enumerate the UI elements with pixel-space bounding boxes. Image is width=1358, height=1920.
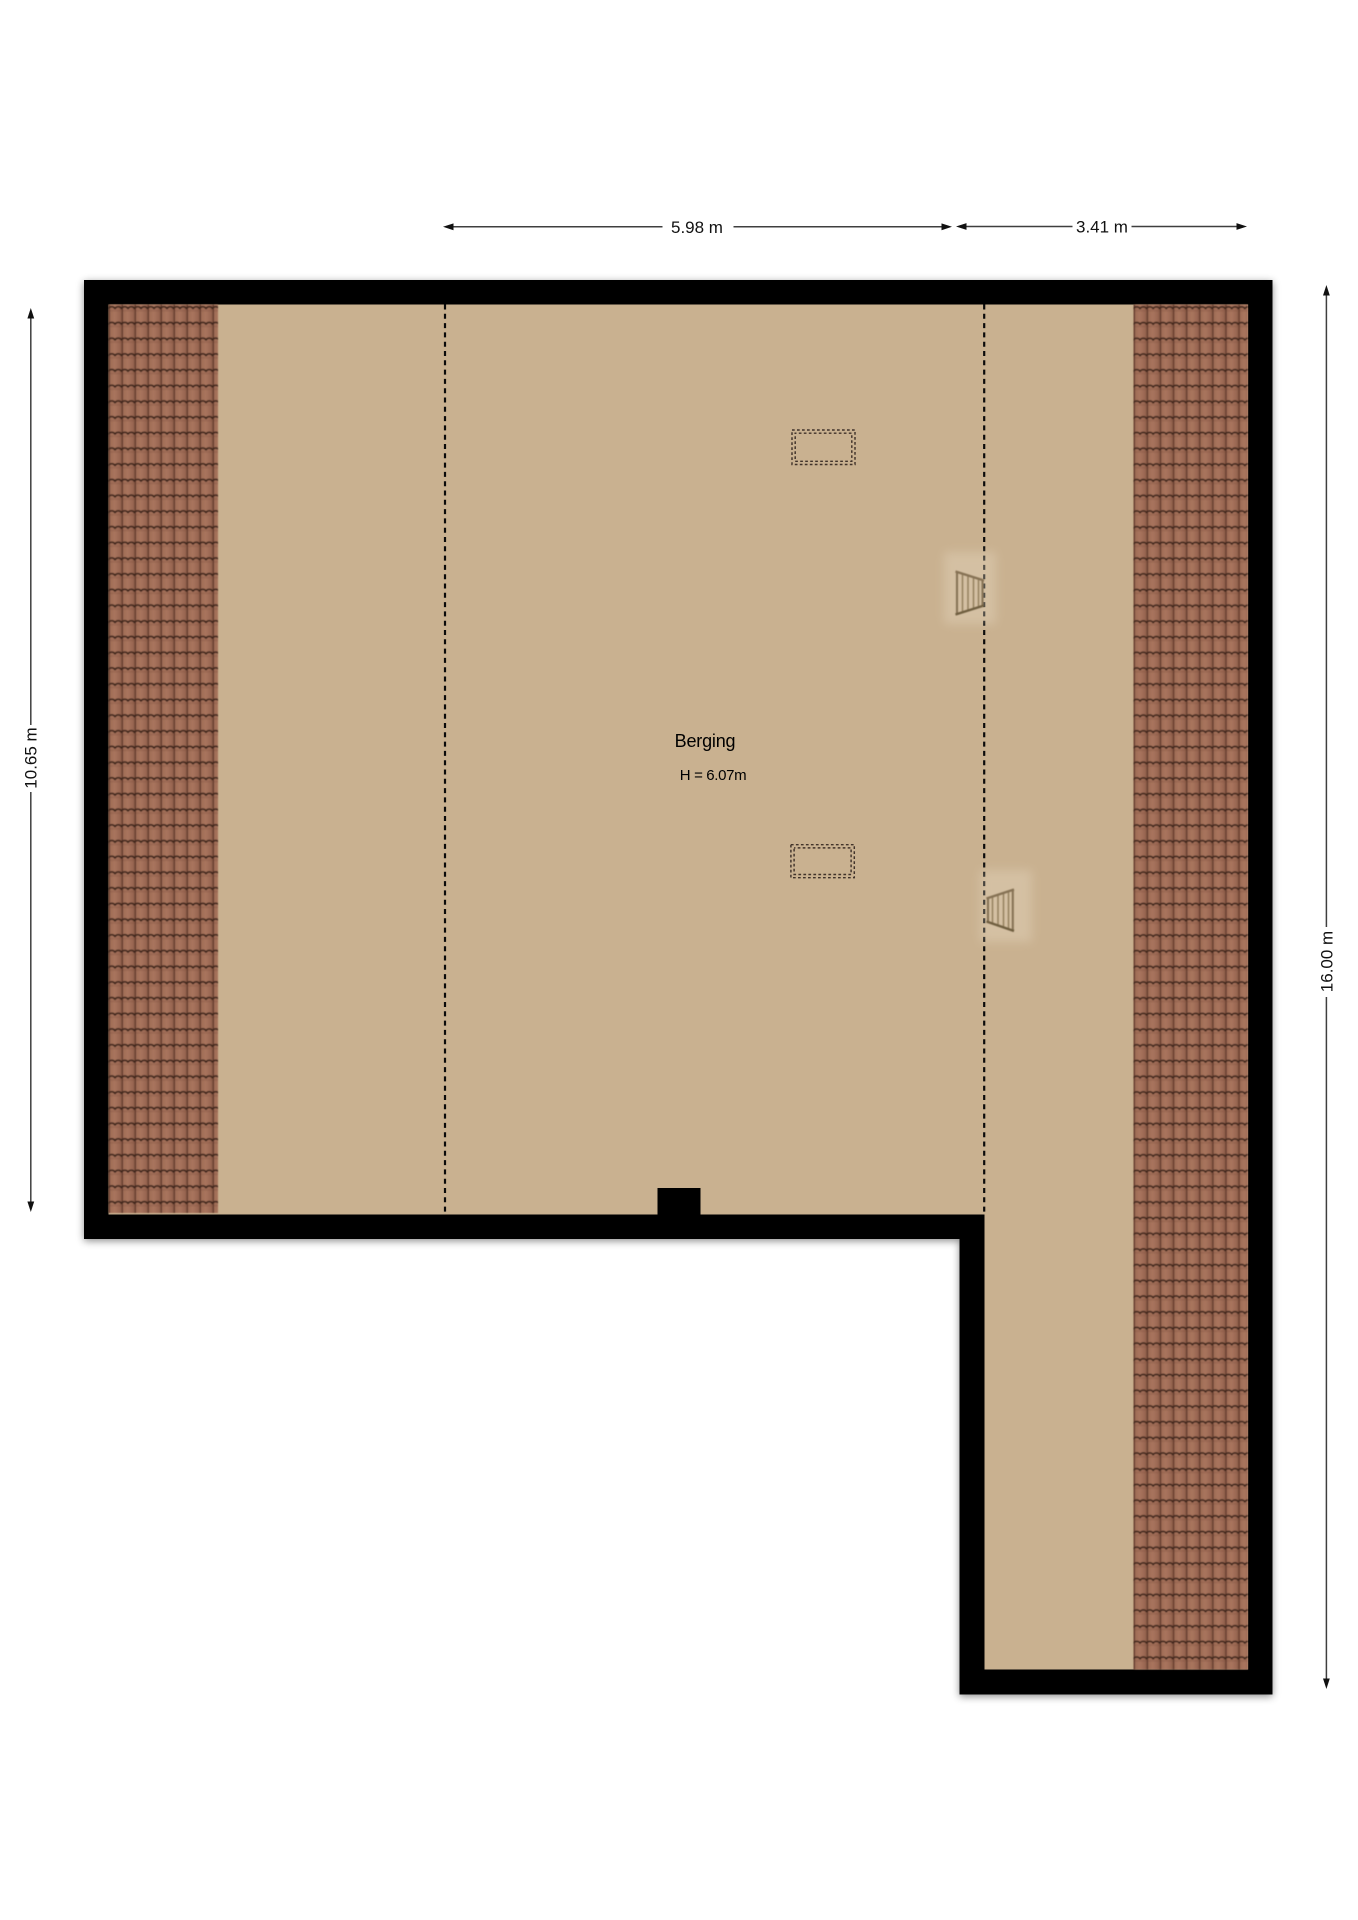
svg-text:5.98 m: 5.98 m — [671, 218, 723, 237]
svg-text:10.65 m: 10.65 m — [21, 727, 40, 788]
svg-text:3.41 m: 3.41 m — [1076, 218, 1128, 237]
svg-text:Berging: Berging — [675, 731, 736, 751]
svg-text:H = 6.07m: H = 6.07m — [680, 767, 746, 784]
svg-text:16.00 m: 16.00 m — [1318, 931, 1337, 992]
